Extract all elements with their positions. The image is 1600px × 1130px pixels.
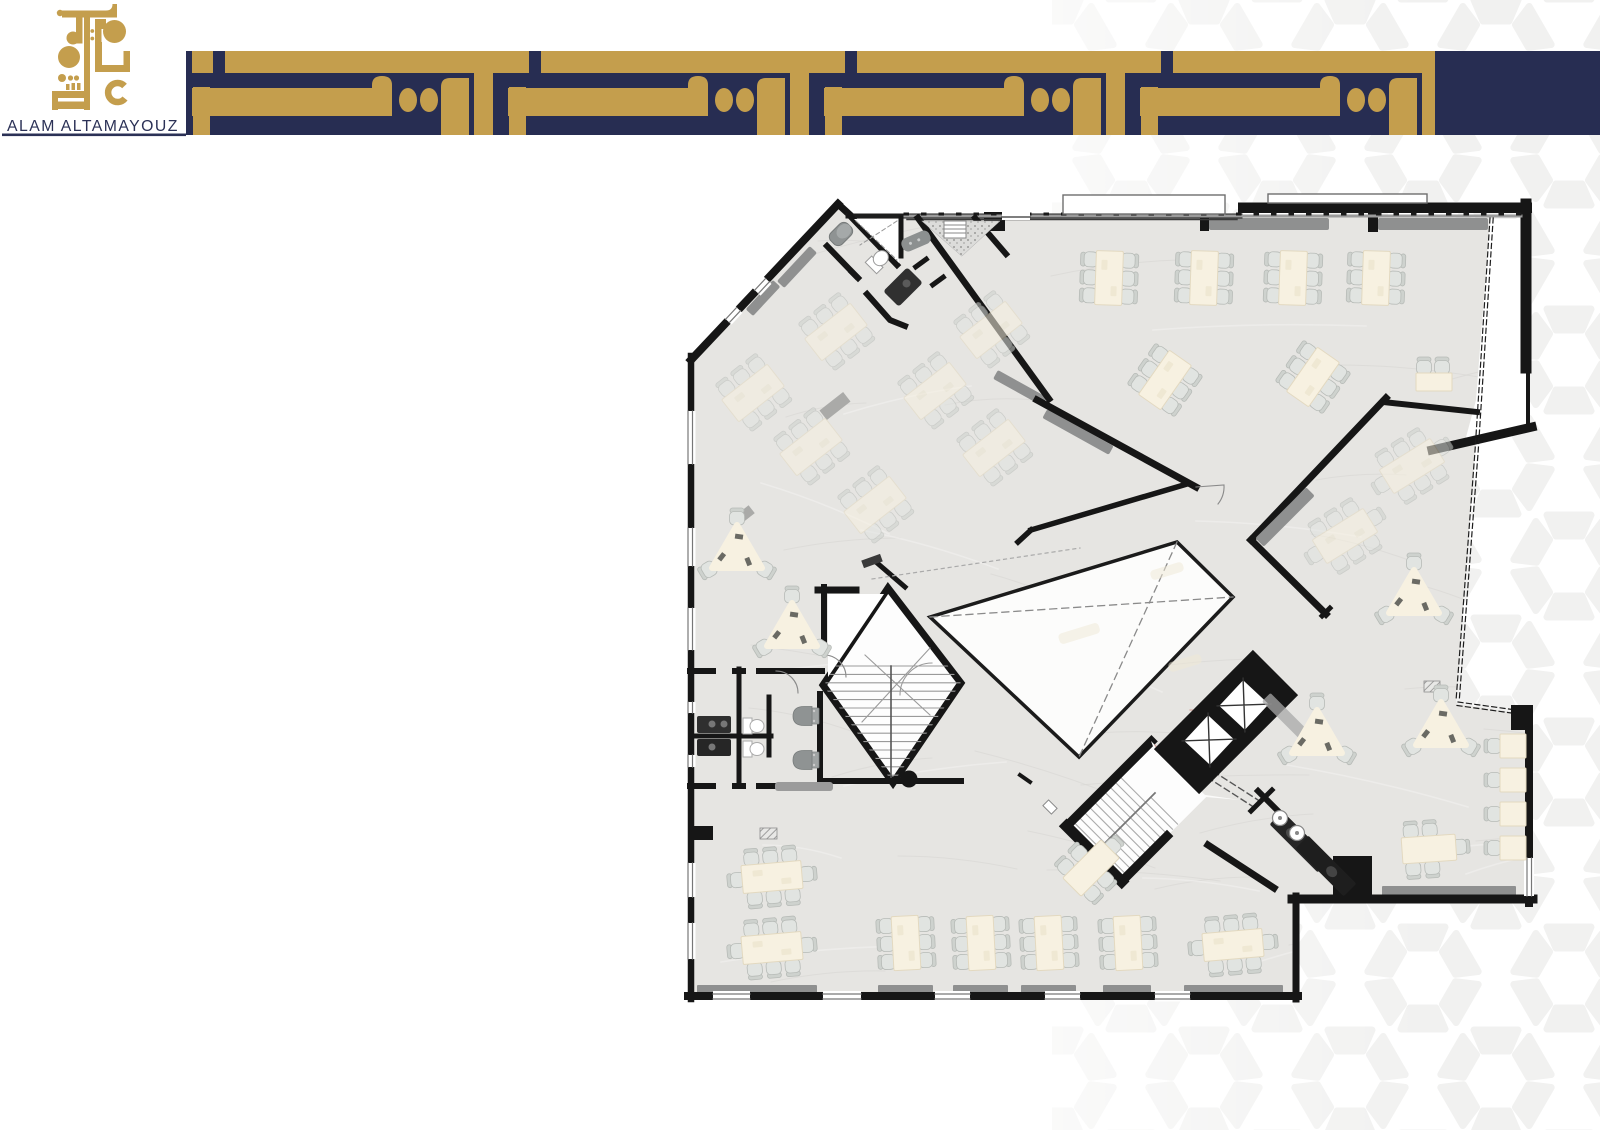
svg-text:ALAM ALTAMAYOUZ: ALAM ALTAMAYOUZ [7,118,179,135]
